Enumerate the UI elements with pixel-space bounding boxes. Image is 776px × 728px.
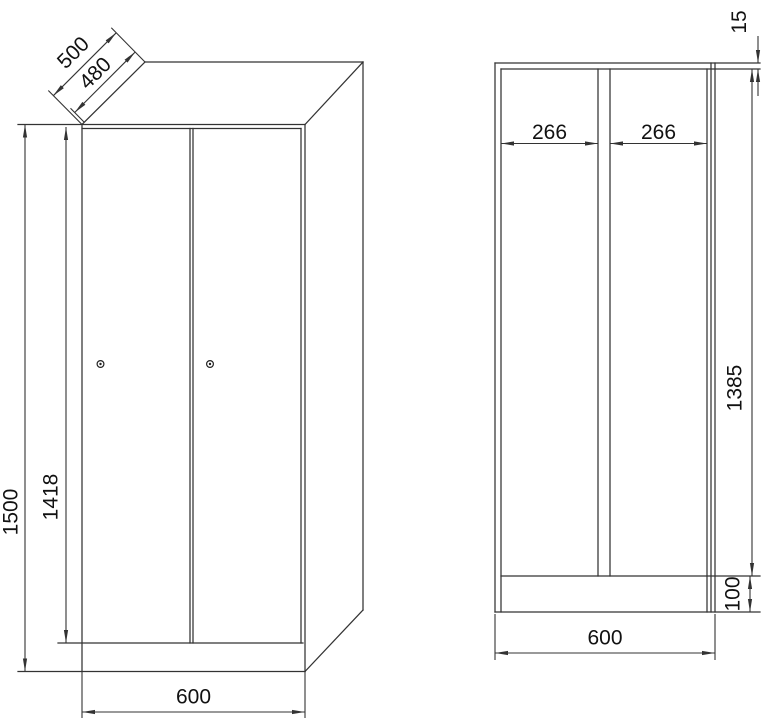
dim-label-width-front: 600 — [176, 686, 211, 709]
dim-label-compartment-right: 266 — [641, 121, 676, 144]
section-view — [495, 63, 760, 612]
dim-label-interior-height: 1385 — [724, 365, 747, 412]
top-right-diagonal-edge — [305, 62, 363, 125]
section-view-dimensions: 266 266 15 1385 100 600 — [495, 10, 758, 660]
locker-dimension-drawing: 1500 1418 600 500 480 266 266 — [0, 0, 776, 728]
dim-label-top-panel: 15 — [728, 10, 751, 33]
lock-cylinder-left — [97, 361, 104, 368]
drawing-canvas: 1500 1418 600 500 480 266 266 — [0, 0, 776, 728]
side-bottom-diagonal-edge — [305, 610, 363, 672]
front-view — [18, 62, 363, 672]
dim-label-compartment-left: 266 — [532, 121, 567, 144]
dim-label-total-height: 1500 — [0, 489, 23, 536]
dim-label-plinth-height: 100 — [722, 576, 745, 611]
lock-cylinder-right — [207, 361, 214, 368]
extension-line — [111, 28, 145, 62]
front-view-dimensions: 1500 1418 600 500 480 — [0, 28, 305, 718]
dim-label-door-height: 1418 — [40, 474, 63, 521]
dim-label-width-section: 600 — [587, 627, 622, 650]
